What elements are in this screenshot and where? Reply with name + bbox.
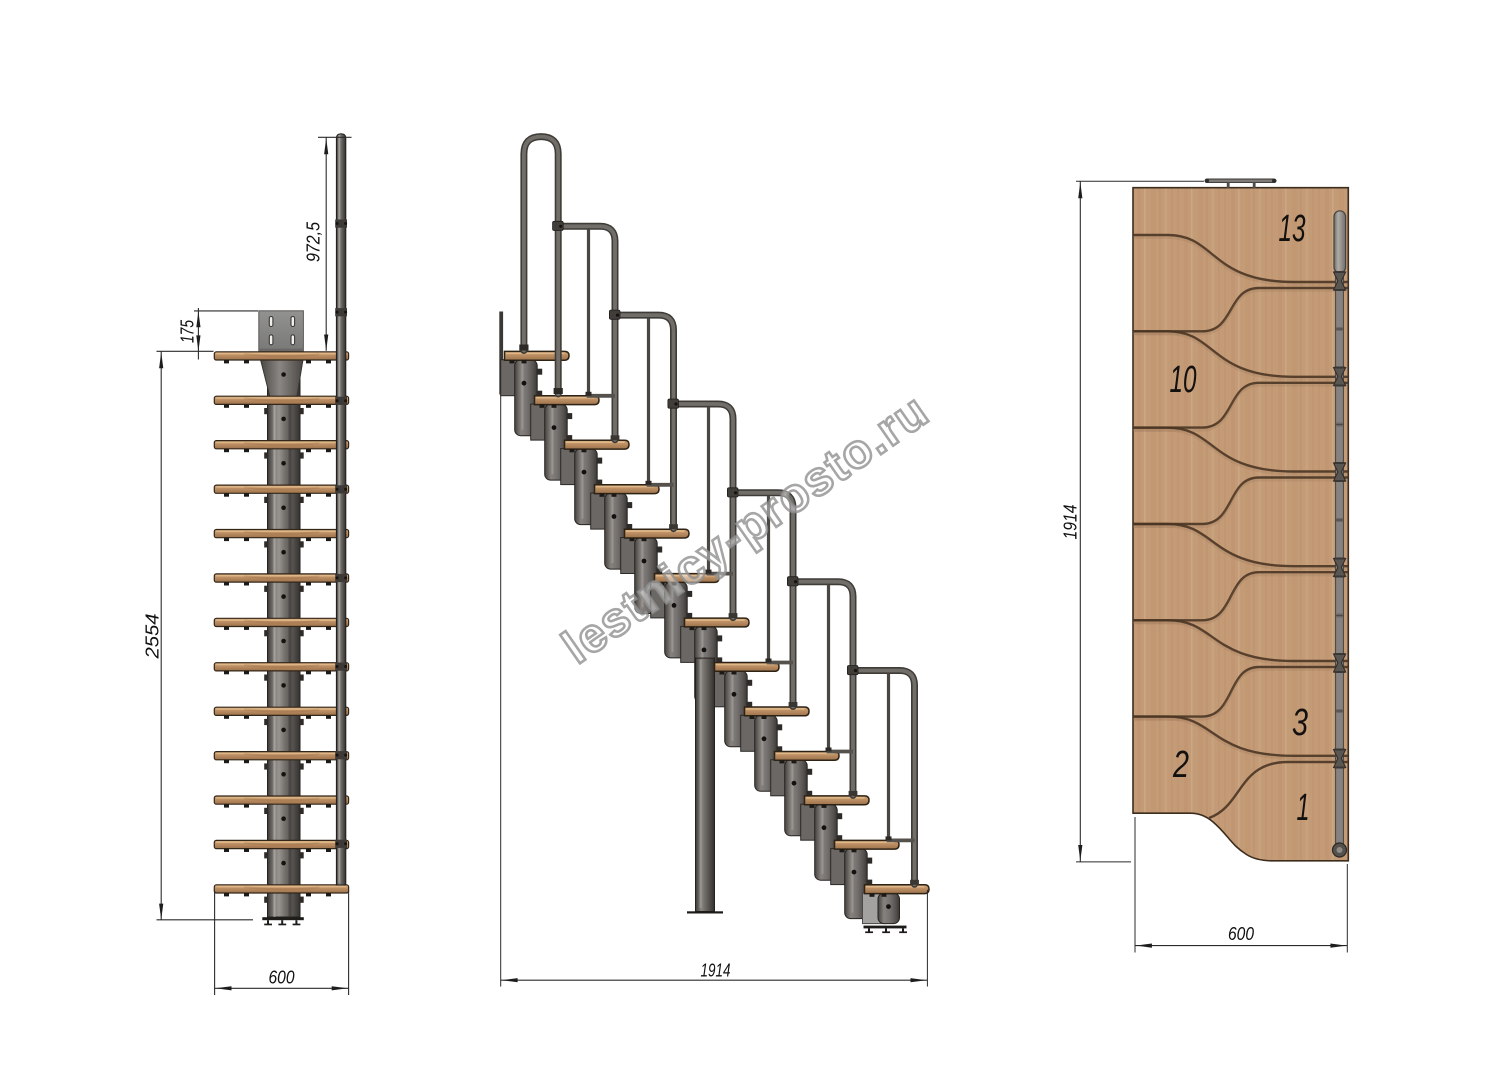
svg-text:1: 1 — [1297, 787, 1310, 829]
svg-text:600: 600 — [269, 968, 295, 988]
svg-text:2554: 2554 — [143, 614, 163, 660]
svg-text:10: 10 — [1170, 359, 1197, 401]
svg-text:2: 2 — [1172, 744, 1189, 786]
svg-text:600: 600 — [1228, 924, 1254, 944]
svg-text:3: 3 — [1292, 702, 1308, 744]
svg-text:1914: 1914 — [1061, 505, 1081, 540]
svg-text:1914: 1914 — [701, 961, 731, 981]
svg-text:972,5: 972,5 — [304, 221, 324, 262]
svg-text:175: 175 — [178, 319, 198, 343]
svg-text:13: 13 — [1279, 208, 1306, 250]
